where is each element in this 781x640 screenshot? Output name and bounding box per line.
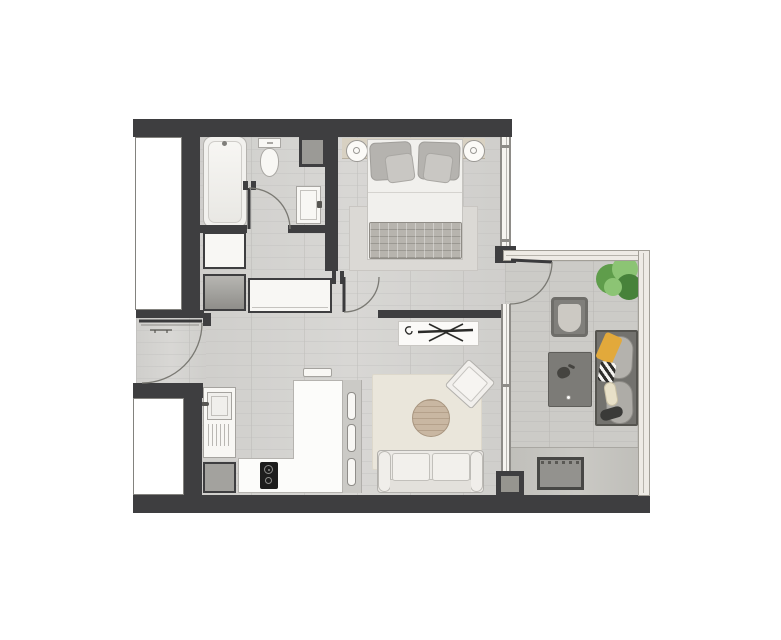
sofa-arm-right (470, 451, 483, 492)
planter-rim (541, 461, 580, 464)
balcony-lounge-chair (551, 297, 588, 337)
void-upper-left (135, 137, 182, 310)
railing-line (506, 255, 647, 256)
wall-vestibule-top (136, 310, 204, 318)
coffee-table-round (412, 399, 450, 437)
chair-cushion (558, 304, 581, 332)
bedroom-window (500, 137, 511, 246)
pillow-small-right (422, 152, 454, 184)
burner-dot (268, 469, 270, 471)
bathtub-inner (208, 141, 242, 223)
bed-throw-blanket (369, 222, 462, 259)
toilet-bowl (260, 148, 279, 177)
column-core (501, 476, 519, 492)
sheet-fold-line (368, 192, 462, 193)
flush-button-icon (267, 142, 273, 144)
cabinet-handle-3 (347, 458, 356, 486)
wall-vestibule-bottom (133, 383, 203, 398)
tv-sideboard (398, 321, 479, 346)
counter-handle-top (303, 368, 332, 377)
floor-plan-canvas (0, 0, 781, 640)
bedside-lamp-right (463, 140, 485, 162)
bathroom-washbasin (296, 186, 321, 224)
tub-faucet-icon (222, 141, 227, 146)
burner-icon (264, 465, 273, 474)
cabinet-handle-1 (347, 392, 356, 420)
wardrobe (248, 278, 332, 313)
living-window (501, 304, 511, 471)
kitchen-counter-right (293, 380, 343, 459)
door-post (203, 313, 211, 326)
vestibule-floor (136, 318, 206, 383)
wall-top (133, 119, 512, 137)
window-divider (503, 384, 509, 387)
wall-bottom (133, 495, 650, 513)
wall-kitchen-left (184, 398, 202, 497)
service-shaft (299, 137, 326, 167)
bedside-lamp-left (346, 140, 368, 162)
door-post (340, 271, 344, 284)
hob-two-burner (260, 462, 278, 489)
balcony-railing-top (503, 250, 650, 261)
wall-bedroom-living (378, 310, 505, 318)
faucet-icon (201, 402, 209, 406)
hall-shelf-gray (203, 274, 246, 311)
sofa-cushion-right (432, 453, 470, 481)
lamp-ring-icon (470, 147, 477, 154)
cup-icon (566, 395, 571, 400)
toilet-tank (258, 138, 281, 148)
sofa-cushion-left (392, 453, 430, 481)
door-post (243, 181, 248, 190)
kitchen-sink-unit (203, 387, 236, 458)
door-post (332, 271, 336, 284)
potted-plant (596, 256, 644, 304)
pillow-small-left (384, 152, 416, 184)
basin-inner (300, 190, 317, 220)
plant-foliage-icon (604, 278, 622, 296)
window-divider (502, 239, 509, 242)
bathtub (203, 136, 247, 228)
sink-basin (207, 392, 232, 420)
window-divider (502, 145, 509, 148)
wall-bath-left (182, 137, 200, 311)
balcony-railing-right (638, 250, 650, 496)
balcony-bench-sofa (595, 330, 638, 426)
sink-drainboard (208, 424, 232, 446)
basin-faucet-icon (317, 201, 322, 208)
sofa (377, 450, 484, 493)
railing-line (643, 253, 644, 493)
balcony-side-table (548, 352, 592, 407)
hall-closet-white (203, 232, 246, 269)
window-mullion (506, 137, 507, 246)
planter-box (537, 457, 584, 490)
burner-icon (265, 477, 272, 484)
kitchen-counter-bottom (238, 458, 343, 493)
wall-bath-right (325, 137, 338, 271)
sink-basin-inner (211, 396, 228, 416)
column-bottom (496, 471, 524, 497)
wall-bath-bottom-left (198, 225, 247, 233)
lamp-ring-icon (353, 147, 360, 154)
door-post (251, 181, 256, 190)
void-lower-left (133, 398, 184, 495)
patterned-pillow (597, 361, 616, 383)
kitchen-base-cabinet (203, 462, 236, 493)
wardrobe-door-line (252, 307, 328, 308)
window-mullion (506, 304, 507, 471)
cabinet-handle-2 (347, 424, 356, 452)
